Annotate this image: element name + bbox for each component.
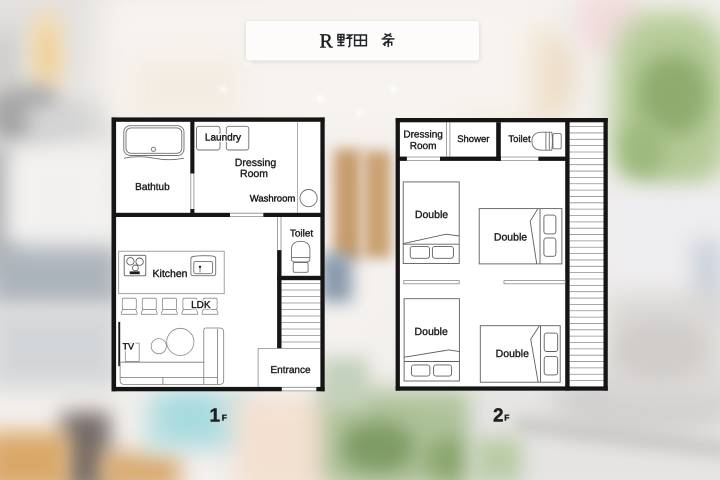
svg-text:Toilet: Toilet [508, 134, 531, 145]
svg-text:R: R [320, 31, 334, 53]
svg-text:Dressing: Dressing [235, 157, 277, 169]
svg-text:Shower: Shower [457, 134, 489, 145]
svg-text:Toilet: Toilet [290, 229, 314, 240]
svg-text:Dressing: Dressing [403, 130, 442, 141]
svg-text:TV: TV [123, 342, 135, 352]
svg-text:F: F [222, 412, 227, 422]
svg-text:Room: Room [410, 141, 437, 152]
svg-text:Kitchen: Kitchen [152, 268, 187, 280]
svg-text:Entrance: Entrance [270, 365, 310, 376]
svg-text:LDK: LDK [191, 300, 211, 311]
svg-text:Washroom: Washroom [250, 194, 296, 205]
svg-text:Double: Double [415, 326, 448, 338]
svg-text:Double: Double [415, 209, 448, 221]
svg-text:Double: Double [494, 231, 527, 243]
svg-text:Laundry: Laundry [205, 133, 241, 144]
svg-text:2: 2 [493, 406, 504, 427]
svg-text:1: 1 [210, 406, 221, 427]
svg-text:F: F [504, 412, 509, 422]
svg-text:Room: Room [240, 168, 268, 180]
svg-text:Bathtub: Bathtub [135, 182, 170, 193]
svg-text:Double: Double [496, 348, 529, 360]
